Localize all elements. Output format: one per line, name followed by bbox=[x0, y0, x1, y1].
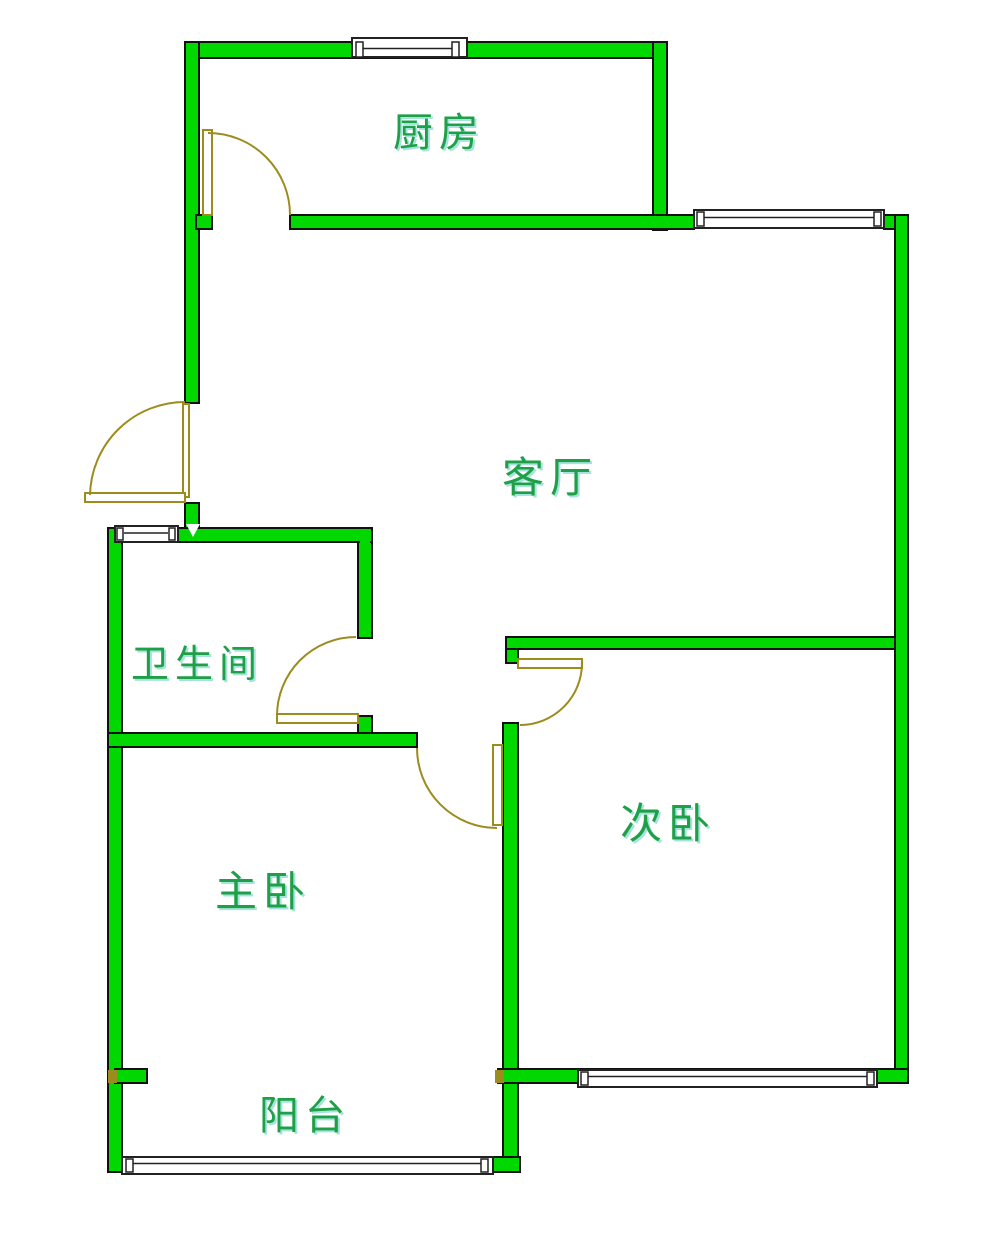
door-swing-arc bbox=[417, 748, 497, 828]
room-label-living-room: 客厅 bbox=[502, 453, 598, 502]
floorplan-drawing: 厨房 客厅 卫生间 次卧 主卧 阳台 bbox=[0, 0, 1000, 1253]
wall-segment-kitchen-bottom-stub bbox=[196, 215, 212, 229]
windows bbox=[115, 38, 884, 1174]
door-swing-arc bbox=[277, 637, 356, 716]
window-post bbox=[581, 1072, 588, 1085]
door-swing-arc bbox=[90, 402, 185, 495]
room-label-balcony: 阳台 bbox=[259, 1093, 351, 1139]
window-post bbox=[874, 212, 881, 226]
balcony-opening bbox=[108, 1070, 504, 1083]
wall-segment-kitchen-right bbox=[653, 42, 667, 230]
wall-joint bbox=[897, 217, 906, 227]
wall-joint bbox=[110, 735, 120, 745]
wall-segment-bathroom-bottom bbox=[108, 733, 417, 747]
window-balcony bbox=[122, 1157, 493, 1174]
window-post bbox=[117, 528, 123, 540]
wall-joint bbox=[187, 217, 194, 227]
wall-joint bbox=[897, 639, 906, 647]
window-post bbox=[452, 42, 459, 57]
window-frame bbox=[352, 38, 467, 57]
door-swing-arc bbox=[520, 663, 582, 725]
floorplan: 厨房 客厅 卫生间 次卧 主卧 阳台 bbox=[0, 0, 1000, 1253]
window-post bbox=[481, 1159, 488, 1172]
room-label-second-bedroom: 次卧 bbox=[620, 799, 716, 848]
door-leaf bbox=[277, 714, 358, 723]
wall-joint bbox=[508, 639, 516, 647]
room-labels: 厨房 客厅 卫生间 次卧 主卧 阳台 bbox=[131, 110, 716, 1139]
door-frame bbox=[183, 404, 189, 497]
window-post bbox=[356, 42, 363, 57]
wall-joint bbox=[655, 217, 665, 227]
door-leaf bbox=[85, 493, 185, 502]
window-frame bbox=[122, 1157, 493, 1174]
door-swing-arc bbox=[208, 133, 290, 215]
window-second-bedroom bbox=[578, 1070, 877, 1087]
window-bathroom bbox=[115, 526, 178, 542]
door-leaf bbox=[518, 659, 582, 668]
window-frame bbox=[578, 1070, 877, 1087]
opening-post bbox=[495, 1070, 504, 1083]
wall-joint bbox=[360, 540, 370, 544]
room-label-kitchen: 厨房 bbox=[393, 110, 485, 156]
window-post bbox=[697, 212, 704, 226]
wall-joint bbox=[655, 44, 665, 56]
door-leaf bbox=[493, 745, 502, 825]
door-master-bedroom bbox=[417, 745, 502, 828]
room-label-bathroom: 卫生间 bbox=[131, 642, 263, 686]
wall-joint bbox=[505, 1071, 516, 1081]
window-frame bbox=[694, 210, 884, 228]
wall-joint bbox=[897, 1071, 906, 1081]
wall-segment-kitchen-bottom bbox=[290, 215, 694, 229]
wall-joint bbox=[187, 44, 197, 56]
door-second-bedroom bbox=[518, 659, 582, 725]
wall-segment-second-top bbox=[506, 637, 895, 649]
wall-joint bbox=[505, 1159, 516, 1170]
door-entrance bbox=[85, 402, 189, 502]
window-post bbox=[867, 1072, 874, 1085]
opening-post bbox=[108, 1070, 117, 1083]
wall-segment-right bbox=[895, 215, 908, 1083]
wall-joint bbox=[360, 734, 370, 738]
wall-joint bbox=[117, 1071, 121, 1081]
wall-segment-bathroom-right bbox=[358, 542, 372, 638]
door-leaf bbox=[203, 130, 212, 215]
wall-segment-bedroom-divider bbox=[503, 723, 518, 1171]
door-kitchen bbox=[203, 130, 290, 215]
window-post bbox=[169, 528, 175, 540]
window-post bbox=[126, 1159, 133, 1172]
room-label-master-bedroom: 主卧 bbox=[215, 867, 311, 916]
window-kitchen-top bbox=[352, 38, 467, 57]
door-bathroom bbox=[277, 637, 358, 723]
window-living-top bbox=[694, 210, 884, 228]
